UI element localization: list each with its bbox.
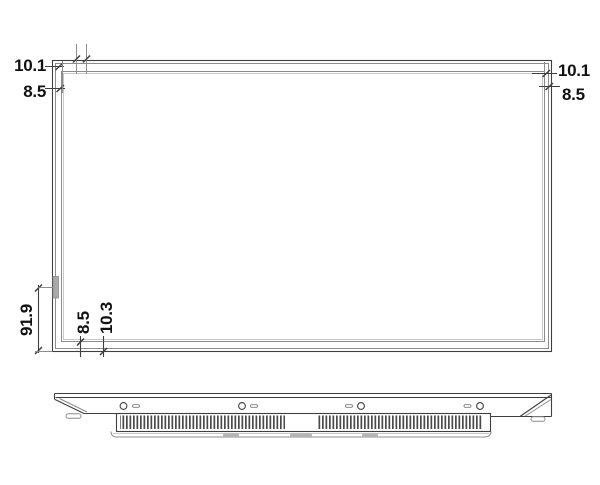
screw-hole [358, 403, 365, 410]
right-wedge-edge-inner [525, 400, 552, 417]
left-wedge-edge [55, 400, 84, 414]
vent-grille-left [120, 416, 285, 430]
right-wedge-edge [520, 395, 551, 417]
screen-area [62, 72, 545, 342]
screw-slot [251, 405, 258, 408]
screw-hole [477, 403, 484, 410]
foot-pad-left [66, 414, 81, 419]
dim-label-bottom-outer: 10.3 [97, 302, 116, 334]
bottom-pad [290, 433, 312, 437]
dim-label-top-right-outer: 10.1 [558, 61, 590, 80]
vent-grille-right [317, 416, 482, 430]
bottom-profile-view [55, 394, 552, 438]
dim-label-top-left-outer: 10.1 [14, 56, 46, 75]
dim-label-sensor-offset: 91.9 [17, 304, 36, 336]
dim-label-top-right-inner: 8.5 [562, 85, 585, 104]
foot-pad-right [531, 417, 545, 422]
left-wedge-edge-inner [60, 399, 88, 413]
dim-label-top-left-inner: 8.5 [23, 82, 46, 101]
bottom-pad [362, 433, 378, 437]
screw-slot [133, 405, 140, 408]
screw-hole [239, 403, 246, 410]
dim-label-bottom-inner: 8.5 [74, 311, 93, 334]
screw-slot [346, 405, 353, 408]
display-dimension-drawing: 10.1 8.5 10.1 8.5 91.9 8.5 10.3 [0, 0, 600, 480]
bottom-pad [223, 433, 239, 437]
screw-hole [120, 403, 127, 410]
side-sensor-tab [53, 277, 59, 299]
front-view [53, 61, 552, 352]
screw-slot [464, 405, 471, 408]
